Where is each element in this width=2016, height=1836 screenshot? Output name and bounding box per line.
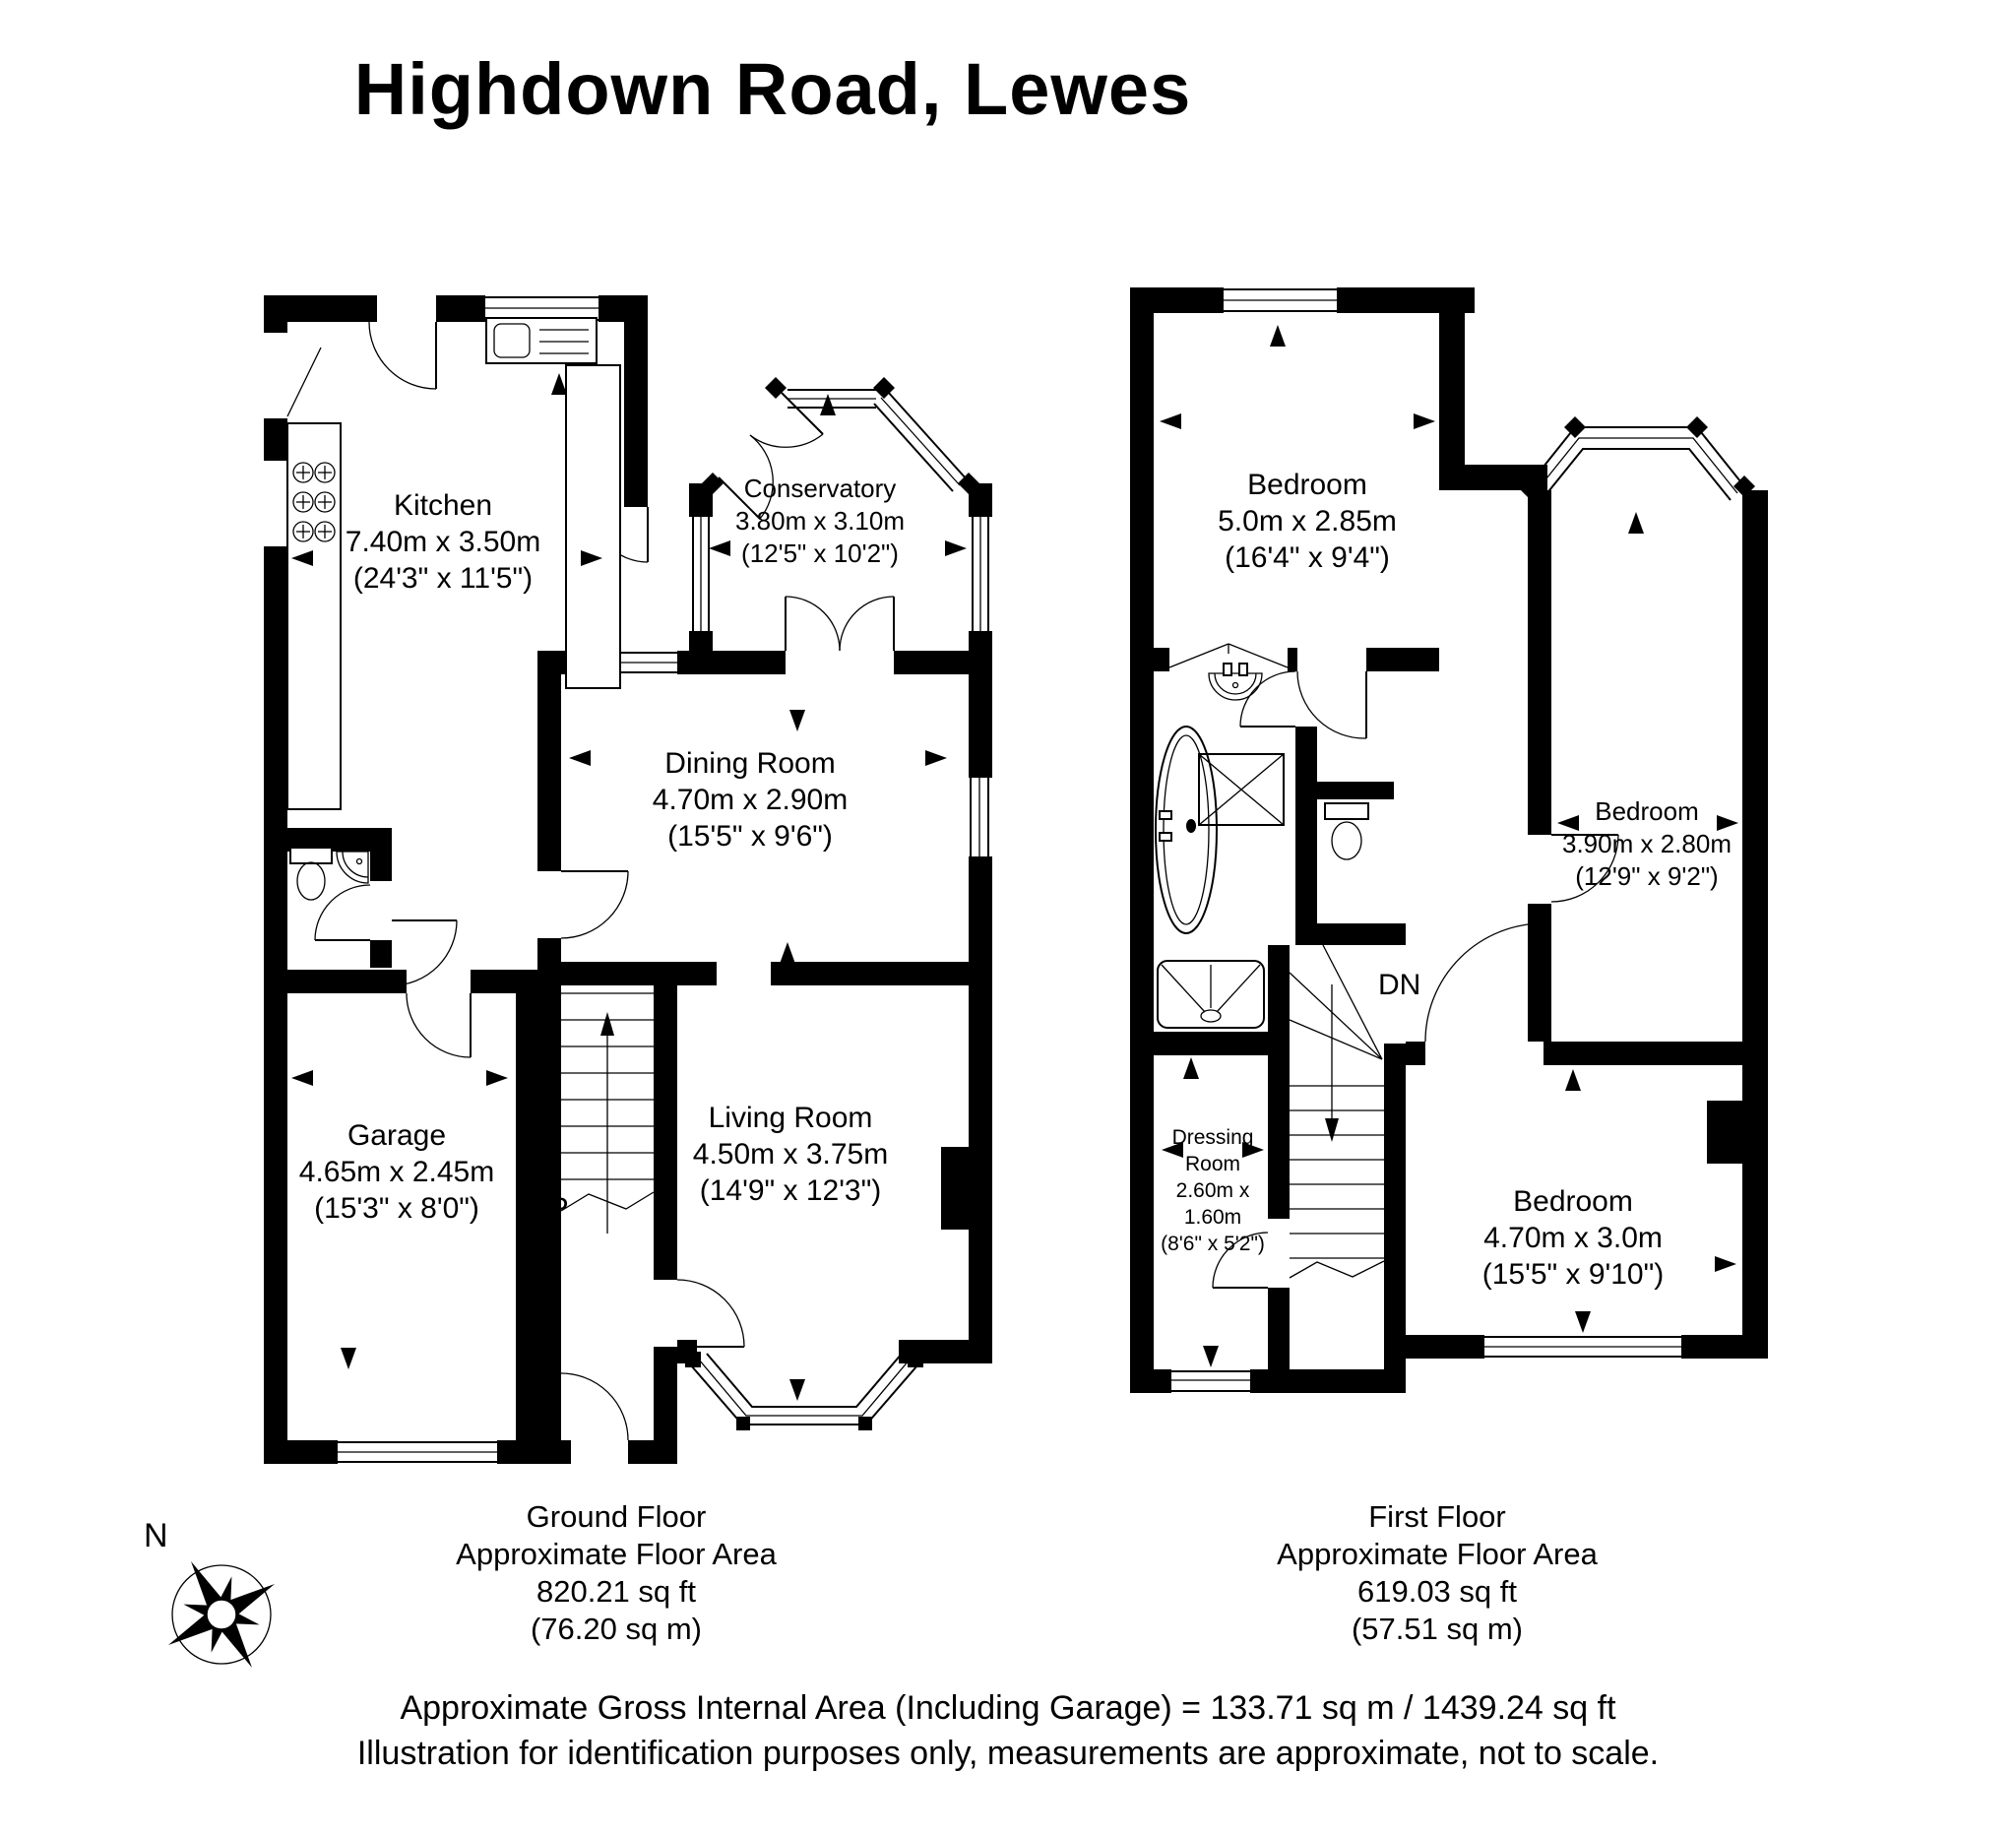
ground-walls-part (677, 651, 786, 674)
shower-icon (1199, 754, 1284, 825)
ground-doors-part (840, 597, 894, 651)
ground-doors-part (407, 993, 471, 1057)
toilet-icon-part (1325, 803, 1368, 819)
bath-icon (1156, 727, 1217, 933)
first-doors-part (1240, 671, 1295, 727)
ground-walls-part (537, 651, 569, 674)
shower-tray-icon-part (1217, 965, 1260, 1012)
ground-doors-part (561, 871, 628, 938)
basin-icon-part (1239, 664, 1247, 675)
first-caption-subtitle: Approximate Floor Area (1191, 1536, 1683, 1573)
basin-icon (1209, 664, 1262, 700)
ground-walls-part (654, 1347, 677, 1440)
first-walls-part (1295, 923, 1406, 945)
ground-doors-part (315, 885, 370, 940)
first-walls-part (1406, 1042, 1425, 1065)
footer-disclaimer: Approximate Gross Internal Area (Includi… (0, 1685, 2016, 1776)
ground-windows (338, 295, 992, 1464)
bath-icon-part (1160, 811, 1171, 819)
ground-walls-part (771, 962, 992, 985)
ground-walls-part (624, 483, 648, 507)
ground-walls-part (969, 856, 992, 1363)
ground-floor-plan: Kitchen 7.40m x 3.50m (24'3" x 11'5") Co… (264, 290, 997, 1472)
first-direction-arrows-part (1203, 1346, 1219, 1367)
bath-icon-part (1156, 727, 1217, 933)
wc-basin-icon-part (337, 852, 368, 883)
first-caption-area-ft: 619.03 sq ft (1191, 1573, 1683, 1611)
ground-walls-part (969, 674, 992, 778)
first-direction-arrows-part (1628, 512, 1644, 534)
ground-windows-part (858, 1417, 872, 1430)
first-stairs-part (1290, 1261, 1384, 1278)
ground-direction-arrows-part (945, 540, 967, 556)
basin-icon-part (1215, 673, 1256, 694)
ground-windows-part (736, 1417, 750, 1430)
first-windows-part (1542, 449, 1731, 500)
ground-walls-part (894, 651, 992, 674)
first-walls-part (1268, 945, 1290, 1219)
wc-basin-icon (337, 852, 368, 883)
room-label-conservatory: Conservatory 3.80m x 3.10m (12'5" x 10'2… (692, 473, 948, 570)
first-walls-part (1295, 727, 1317, 945)
floorplan-page: { "title": "Highdown Road, Lewes", "grou… (0, 0, 2016, 1836)
first-windows-part (1686, 416, 1708, 438)
first-direction-arrows-part (1160, 413, 1181, 429)
room-label-bedroom-1: Bedroom 5.0m x 2.85m (16'4" x 9'4") (1160, 467, 1455, 576)
first-walls-part (1384, 1335, 1406, 1393)
room-label-bedroom-2: Bedroom 3.90m x 2.80m (12'9" x 9'2") (1509, 795, 1785, 893)
first-walls-part (1154, 1032, 1290, 1055)
ground-walls-part (264, 1440, 338, 1464)
first-floor-caption: First Floor Approximate Floor Area 619.0… (1191, 1498, 1683, 1648)
ground-windows-part (685, 1352, 701, 1367)
first-stairs-part (1325, 1118, 1339, 1142)
ground-walls-part (624, 295, 648, 507)
room-label-dining-room: Dining Room 4.70m x 2.90m (15'5" x 9'6") (602, 745, 898, 855)
first-walls-part (1250, 1369, 1384, 1393)
ground-walls-part (969, 631, 992, 651)
first-direction-arrows-part (1575, 1311, 1591, 1333)
bath-icon-part (1164, 735, 1209, 924)
ground-windows-part (908, 1352, 923, 1367)
stairs-up-label: UP (528, 1192, 569, 1226)
first-direction-arrows-part (1270, 325, 1286, 347)
first-walls-part (1384, 1044, 1406, 1359)
ground-walls-part (497, 1440, 571, 1464)
stairs-down-label: DN (1378, 969, 1420, 1002)
wc-basin-icon-part (343, 852, 368, 877)
first-windows-part (1171, 1369, 1250, 1393)
ground-walls-part (264, 418, 287, 461)
ground-walls-part (370, 852, 392, 881)
ground-direction-arrows-part (789, 1379, 805, 1401)
bath-icon-part (1160, 833, 1171, 841)
first-walls-part (1154, 648, 1169, 671)
first-walls-part (1366, 648, 1439, 671)
first-caption-title: First Floor (1191, 1498, 1683, 1536)
sink-icon (486, 318, 597, 363)
first-direction-arrows-part (1414, 413, 1435, 429)
first-walls-part (1130, 1369, 1171, 1393)
ground-walls-part (264, 295, 377, 322)
ground-stairs-part (600, 1012, 614, 1036)
wc-toilet-icon-part (297, 862, 325, 900)
ground-caption-title: Ground Floor (370, 1498, 862, 1536)
room-label-dressing-room: Dressing Room 2.60m x 1.60m (8'6" x 5'2"… (1158, 1124, 1268, 1257)
wc-basin-icon-part (357, 859, 362, 864)
first-doors-part (1228, 644, 1288, 667)
first-walls-part (1268, 1288, 1290, 1369)
ground-stairs (561, 993, 654, 1234)
basin-icon-part (1209, 673, 1262, 700)
toilet-icon-part (1332, 822, 1361, 859)
ground-caption-area-m: (76.20 sq m) (370, 1611, 862, 1648)
basin-icon-part (1224, 664, 1231, 675)
first-caption-area-m: (57.51 sq m) (1191, 1611, 1683, 1648)
room-label-kitchen: Kitchen 7.40m x 3.50m (24'3" x 11'5") (295, 487, 591, 597)
ground-doors-part (559, 1373, 628, 1440)
first-stairs-part (1290, 1020, 1382, 1059)
basin-icon-part (1233, 683, 1238, 688)
compass-icon-part (207, 1600, 236, 1629)
ground-windows-part (888, 392, 967, 479)
ground-direction-arrows-part (551, 373, 567, 395)
sink-icon-part (486, 318, 597, 363)
toilet-icon (1325, 803, 1368, 859)
ground-doors-part (369, 322, 436, 389)
first-stairs-part (1290, 973, 1382, 1059)
ground-walls-part (516, 993, 539, 1464)
ground-direction-arrows-part (780, 942, 795, 964)
disclaimer-text: Illustration for identification purposes… (0, 1731, 2016, 1776)
kitchen-counter-icon-part (287, 423, 341, 809)
ground-floor-drawing (264, 290, 997, 1472)
first-walls-part (1528, 490, 1551, 835)
ground-direction-arrows-part (789, 710, 805, 731)
first-stairs (1290, 945, 1384, 1278)
first-walls-part (1742, 490, 1768, 1359)
first-walls-part (1681, 1335, 1768, 1359)
first-walls-part (1707, 1101, 1742, 1164)
ground-walls-part (689, 631, 713, 651)
ground-doors-part (287, 348, 321, 416)
ground-caption-subtitle: Approximate Floor Area (370, 1536, 862, 1573)
first-doors-part (1425, 923, 1543, 1042)
wc-toilet-icon-part (290, 848, 332, 863)
shower-tray-icon (1158, 961, 1264, 1028)
compass-icon (138, 1521, 305, 1688)
ground-walls-part (537, 674, 561, 871)
ground-walls-part (287, 970, 407, 993)
first-floor-plan: Bedroom 5.0m x 2.85m (16'4" x 9'4") Bedr… (1130, 284, 1792, 1425)
ground-direction-arrows-part (341, 1348, 356, 1369)
bath-icon-part (1186, 819, 1196, 833)
ground-walls-part (537, 962, 717, 985)
first-walls-part (1288, 648, 1297, 671)
first-direction-arrows-part (1183, 1057, 1199, 1079)
ground-caption-area-ft: 820.21 sq ft (370, 1573, 862, 1611)
first-windows-part (1535, 438, 1737, 493)
ground-walls-part (436, 295, 485, 322)
first-walls-part (1439, 287, 1465, 490)
first-walls-part (1317, 782, 1394, 799)
ground-direction-arrows-part (820, 394, 836, 415)
room-label-living-room: Living Room 4.50m x 3.75m (14'9" x 12'3"… (643, 1100, 938, 1209)
first-walls-part (1130, 287, 1154, 1393)
ground-direction-arrows-part (569, 750, 591, 766)
shower-tray-icon-part (1162, 965, 1205, 1012)
ground-walls-part (370, 940, 392, 968)
ground-direction-arrows-part (486, 1070, 508, 1086)
first-doors-part (1169, 644, 1228, 667)
ground-doors-part (677, 1280, 744, 1347)
ground-floor-caption: Ground Floor Approximate Floor Area 820.… (370, 1498, 862, 1648)
room-label-garage: Garage 4.65m x 2.45m (15'3" x 8'0") (274, 1117, 520, 1227)
wc-toilet-icon (290, 848, 332, 900)
ground-walls-part (537, 938, 561, 962)
page-title: Highdown Road, Lewes (281, 47, 1265, 131)
first-walls-part (1543, 1042, 1768, 1065)
ground-direction-arrows-part (291, 1070, 313, 1086)
first-direction-arrows-part (1565, 1069, 1581, 1091)
gross-internal-area-text: Approximate Gross Internal Area (Includi… (0, 1685, 2016, 1731)
first-windows-part (1564, 416, 1586, 438)
ground-walls-part (471, 970, 539, 993)
ground-walls-part (941, 1147, 969, 1230)
ground-walls-part (628, 1440, 677, 1464)
room-label-bedroom-3: Bedroom 4.70m x 3.0m (15'5" x 9'10") (1425, 1183, 1721, 1293)
ground-direction-arrows-part (925, 750, 947, 766)
ground-doors-part (786, 597, 840, 651)
ground-walls-part (264, 546, 287, 1462)
